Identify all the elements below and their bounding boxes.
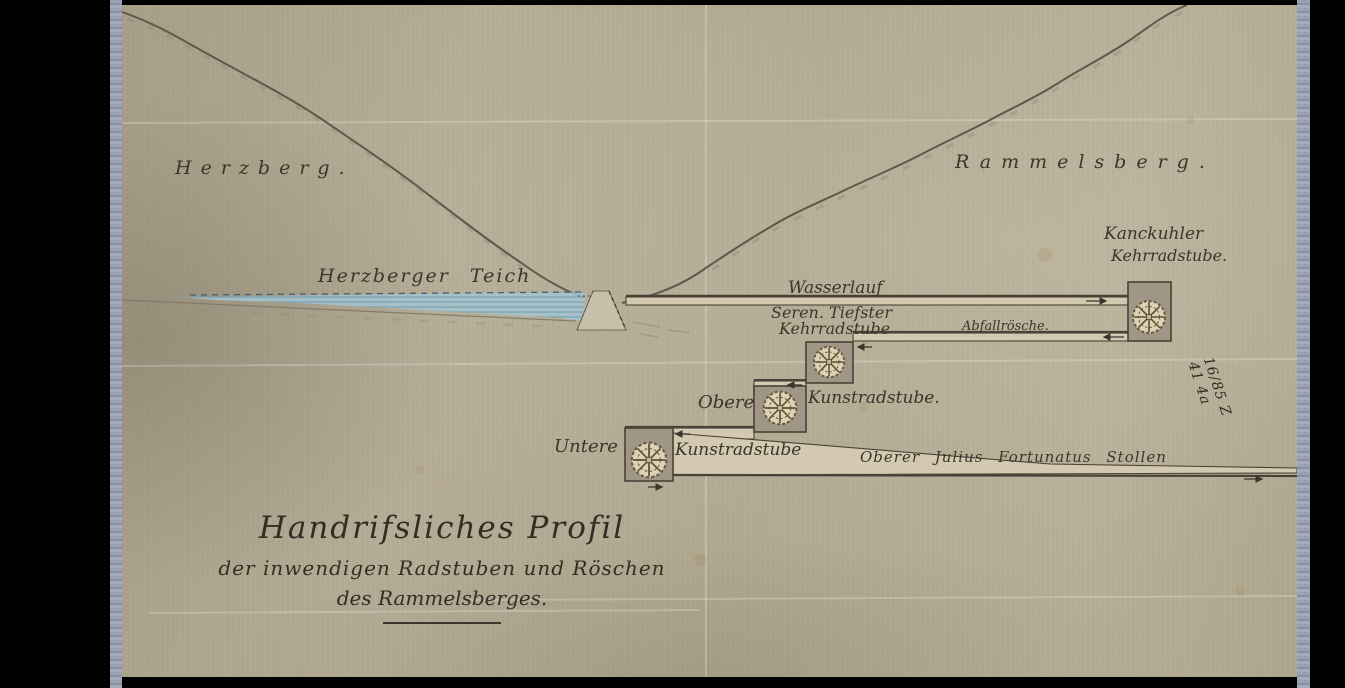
title-line3: des Rammelsberges. <box>152 586 732 610</box>
mount-strip-right <box>1297 0 1310 688</box>
untere-label: Untere <box>554 437 618 457</box>
kanekuhler-label-line2: Kehrradstube. <box>1111 247 1227 265</box>
obere-kunstradstube-label: Kunstradstube. <box>808 389 940 408</box>
pond-water <box>178 292 585 321</box>
drawing-sheet: Herzberg. Rammelsberg. Herzberger Teich … <box>122 5 1297 677</box>
title-line1: Handrifsliches Profil <box>152 510 732 546</box>
herzberger-teich-label: Herzberger Teich <box>318 266 531 287</box>
kanekuhler-label-line1: Kanckuhler <box>1104 225 1203 244</box>
title-block: Handrifsliches Profil der inwendigen Rad… <box>152 510 732 624</box>
wasserlauf-label: Wasserlauf <box>788 279 883 298</box>
title-underline <box>383 622 501 624</box>
untere-kunstradstube-label: Kunstradstube <box>675 441 801 460</box>
obere-label: Obere <box>698 393 754 413</box>
kanekuhler-wheel-icon <box>1133 301 1165 333</box>
seren-tiefster-label-line2: Kehrradstube <box>779 320 890 338</box>
mount-strip-left <box>110 0 122 688</box>
title-line2: der inwendigen Radstuben und Röschen <box>152 556 732 580</box>
obere-kunstrad-wheel-icon <box>764 392 797 425</box>
seren-tiefster-wheel-icon <box>814 347 844 377</box>
herzberg-ridge <box>122 12 583 297</box>
scan-frame: Herzberg. Rammelsberg. Herzberger Teich … <box>0 0 1345 688</box>
abfallroesche-label: Abfallrösche. <box>962 320 1049 334</box>
herzberg-label: Herzberg. <box>175 158 354 179</box>
untere-kunstrad-wheel-icon <box>632 443 667 478</box>
stollen-label: Oberer Julius Fortunatus Stollen <box>860 449 1167 466</box>
rammelsberg-label: Rammelsberg. <box>955 152 1215 173</box>
